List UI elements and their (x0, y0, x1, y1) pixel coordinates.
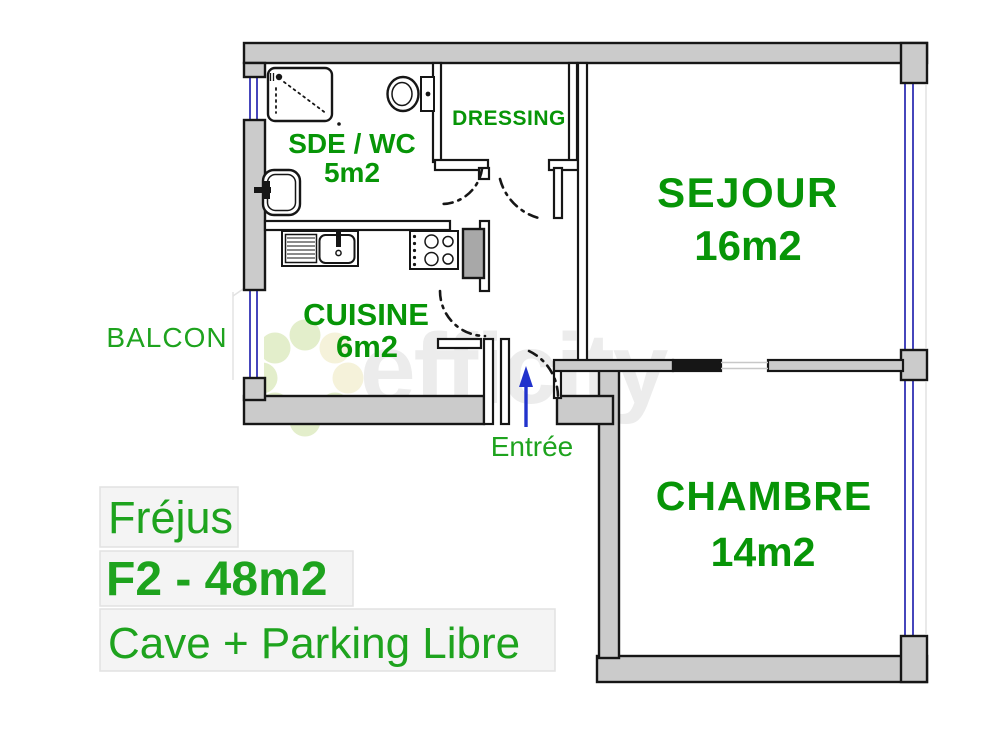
sink-faucet (336, 232, 341, 247)
room-label-sejour: SEJOUR (657, 169, 839, 216)
stove-icon (410, 231, 458, 269)
caption-city: Fréjus (108, 492, 233, 543)
room-label-sde: SDE / WC (288, 128, 416, 159)
wall (597, 656, 927, 682)
wall (901, 43, 927, 83)
wall (244, 43, 927, 63)
room-area-cuisine: 6m2 (336, 329, 398, 364)
balcony-label: BALCON (106, 322, 227, 353)
watermark-dot (260, 333, 291, 364)
room-area-sde: 5m2 (324, 157, 380, 188)
partition-wall (554, 360, 673, 371)
caption-type-size: F2 - 48m2 (106, 553, 327, 606)
open-door-leaf (673, 360, 721, 371)
floor-plan-drawing: efficity (0, 0, 1003, 752)
plan-dot (337, 122, 341, 126)
room-label-cuisine: CUISINE (303, 297, 429, 332)
watermark-dot (333, 363, 364, 394)
partition-wall (265, 221, 450, 230)
fridge-icon (463, 229, 484, 278)
window-opening (245, 289, 264, 379)
washbasin-tap (263, 181, 270, 199)
room-area-sejour: 16m2 (694, 222, 801, 269)
door-jamb (484, 339, 493, 424)
entrance-label: Entrée (491, 431, 574, 462)
caption-extras: Cave + Parking Libre (108, 619, 520, 668)
wall (244, 63, 265, 77)
shower-head (276, 74, 282, 80)
wall (557, 396, 613, 424)
dressing-door-arc (500, 179, 543, 219)
partition-wall (569, 63, 577, 162)
partition-wall (768, 360, 903, 371)
partition-wall (438, 339, 481, 348)
partition-wall (554, 168, 562, 218)
toilet-flush (426, 92, 431, 97)
sde-door-arc (441, 169, 482, 204)
floor-plan-page: efficity (0, 0, 1003, 752)
wall (244, 378, 265, 400)
toilet-icon (388, 77, 435, 111)
kitchen-sink-icon (282, 231, 358, 266)
room-area-chambre: 14m2 (711, 529, 816, 575)
wall (901, 350, 927, 380)
shower-icon (268, 68, 341, 126)
door-jamb (501, 339, 509, 424)
wall (244, 396, 484, 424)
window-opening (245, 74, 264, 122)
room-label-dressing: DRESSING (452, 107, 566, 130)
listing-caption: Fréjus F2 - 48m2 Cave + Parking Libre (100, 487, 555, 671)
wall (901, 636, 927, 682)
room-label-chambre: CHAMBRE (656, 473, 873, 519)
partition-wall (578, 63, 587, 362)
